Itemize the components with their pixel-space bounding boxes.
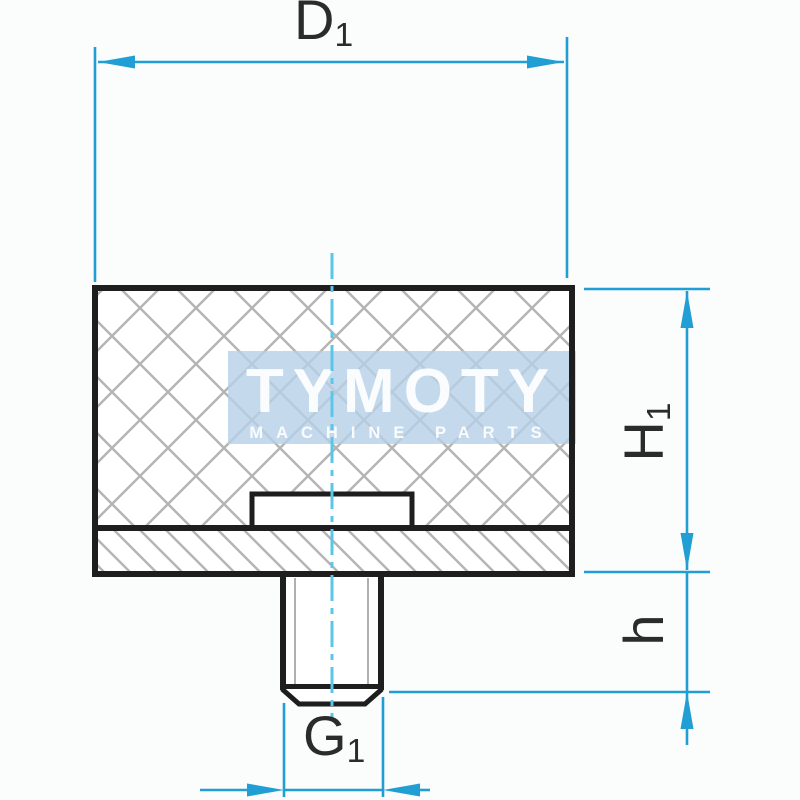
- g1-label-main: G: [303, 704, 347, 767]
- d1-label-main: D: [294, 0, 334, 51]
- dimension-d1: [95, 37, 567, 282]
- h1-label-sub: 1: [641, 402, 678, 421]
- watermark-tagline-text: MACHINE PARTS: [249, 424, 554, 442]
- h-arrow-up: [681, 692, 694, 729]
- h-label: h: [616, 614, 672, 645]
- g1-label-sub: 1: [347, 733, 366, 770]
- watermark: TYMOTY MACHINE PARTS: [228, 351, 576, 444]
- h1-label-main: H: [612, 421, 675, 461]
- g1-arrow-right-pointing: [247, 784, 284, 797]
- g1-arrow-left-pointing: [383, 784, 420, 797]
- g1-label: G1: [303, 708, 365, 764]
- h1-arrow-up: [681, 291, 694, 328]
- watermark-brand-text: TYMOTY: [246, 357, 558, 426]
- h1-arrow-down: [681, 533, 694, 570]
- dimension-h: [389, 572, 710, 745]
- technical-drawing: TYMOTY MACHINE PARTS: [0, 0, 800, 800]
- d1-label-sub: 1: [334, 17, 353, 54]
- h1-label: H1: [616, 402, 672, 461]
- d1-arrow-right: [527, 56, 564, 69]
- drawing-canvas: TYMOTY MACHINE PARTS: [0, 0, 800, 800]
- d1-label: D1: [294, 0, 353, 48]
- d1-arrow-left: [98, 56, 135, 69]
- h-label-main: h: [612, 614, 675, 645]
